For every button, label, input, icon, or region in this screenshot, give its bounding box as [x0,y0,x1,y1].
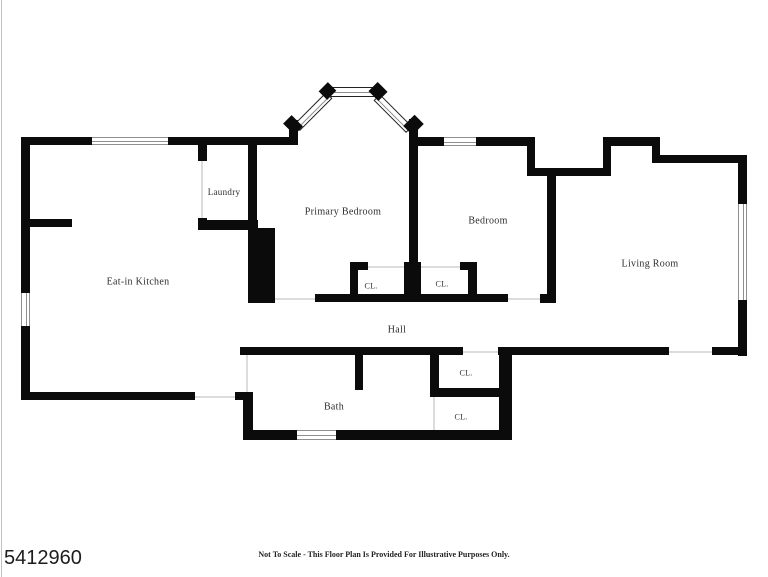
room-label-bedroom: Bedroom [468,216,507,227]
window-cap [21,326,30,330]
wall-segment [430,347,439,392]
wall-segment [21,137,93,145]
wall-segment [527,168,611,176]
wall-segment [430,388,505,397]
window-cap [440,137,444,146]
door-opening-line [433,397,435,430]
window-cap [738,200,747,204]
wall-segment [315,294,508,302]
room-label-primary-bedroom: Primary Bedroom [305,207,381,218]
wall-segment [355,355,363,390]
room-label-cl: CL. [435,280,448,289]
door-opening-line [508,298,540,300]
wall-segment [738,155,747,202]
room-label-cl: CL. [454,413,467,422]
door-opening-line [421,266,460,268]
room-label-cl: CL. [364,282,377,291]
window-marker [738,200,747,304]
wall-segment [350,262,368,270]
room-label-bath: Bath [324,402,344,413]
wall-segment [243,430,293,440]
wall-segment [547,176,556,303]
door-opening-line [275,298,315,300]
window-cap [738,300,747,304]
wall-segment [207,137,291,145]
window-marker [440,137,480,146]
door-opening-line [669,351,712,353]
window-cap [21,289,30,293]
wall-segment [652,155,747,163]
door-opening-line [195,396,235,398]
wall-segment [340,430,512,440]
left-edge-line [1,0,2,577]
wall-segment [248,228,275,303]
window-cap [293,430,297,440]
window-cap [336,430,340,440]
wall-segment [499,347,512,440]
wall-segment [198,145,207,161]
window-cap [476,137,480,146]
door-opening-line [368,266,405,268]
wall-segment [540,294,556,303]
window-pane-line [26,289,27,330]
room-label-living-room: Living Room [622,259,679,270]
wall-segment [418,137,440,146]
wall-segment [21,137,30,298]
window-pane-line [293,435,340,436]
door-opening-line [201,161,203,218]
window-pane-line [329,92,374,93]
window-marker [293,430,340,440]
window-marker [92,137,168,145]
window-pane-line [440,142,480,143]
wall-segment [480,137,527,146]
room-label-eat-in-kitchen: Eat-in Kitchen [107,277,170,288]
wall-segment [168,137,208,145]
wall-segment [21,327,30,400]
wall-segment [498,347,669,355]
door-opening-line [463,351,498,353]
room-label-cl: CL. [459,369,472,378]
wall-segment [468,262,477,302]
wall-segment [712,347,747,355]
wall-segment [21,392,195,400]
floorplan-page: Eat-in KitchenLaundryPrimary BedroomBedr… [0,0,768,577]
disclaimer-text: Not To Scale - This Floor Plan Is Provid… [0,550,768,559]
window-pane-line [743,200,744,304]
window-pane-line [92,141,168,142]
wall-segment [248,145,257,229]
room-label-hall: Hall [388,325,406,336]
wall-segment [21,219,72,227]
room-label-laundry: Laundry [208,187,241,197]
door-opening-line [246,355,248,392]
window-pane-line [297,95,329,127]
window-marker [21,289,30,330]
